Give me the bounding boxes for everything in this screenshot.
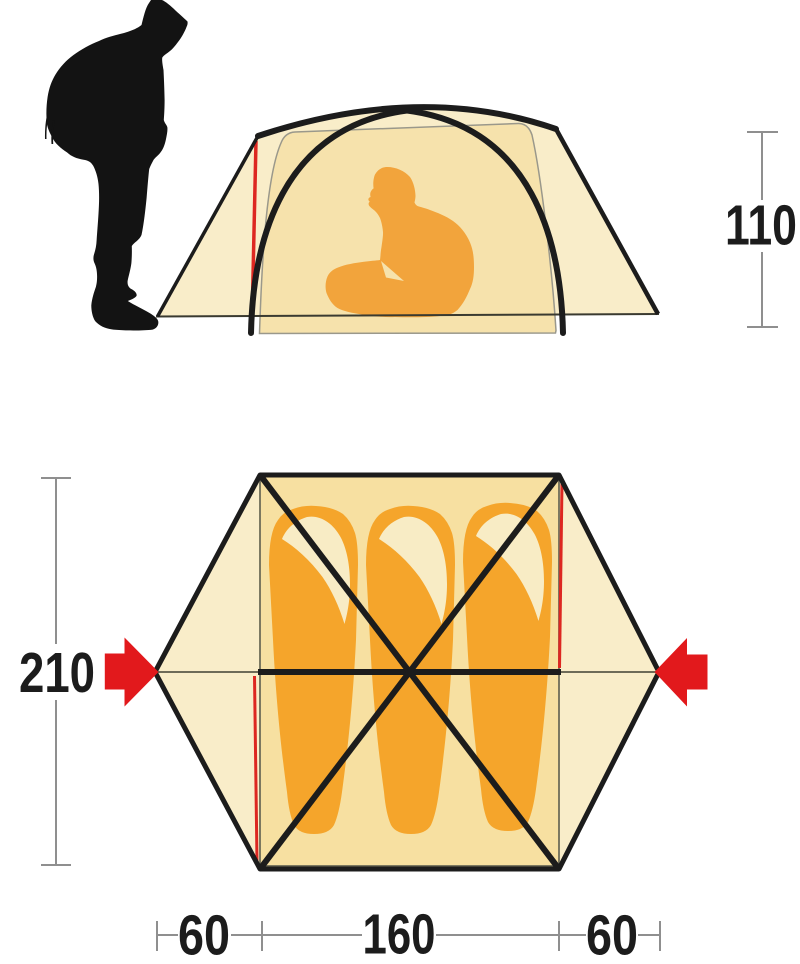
svg-text:110: 110 bbox=[725, 194, 797, 258]
svg-text:210: 210 bbox=[19, 641, 95, 705]
svg-text:160: 160 bbox=[363, 903, 436, 964]
svg-text:60: 60 bbox=[586, 904, 638, 964]
svg-text:60: 60 bbox=[178, 904, 230, 964]
